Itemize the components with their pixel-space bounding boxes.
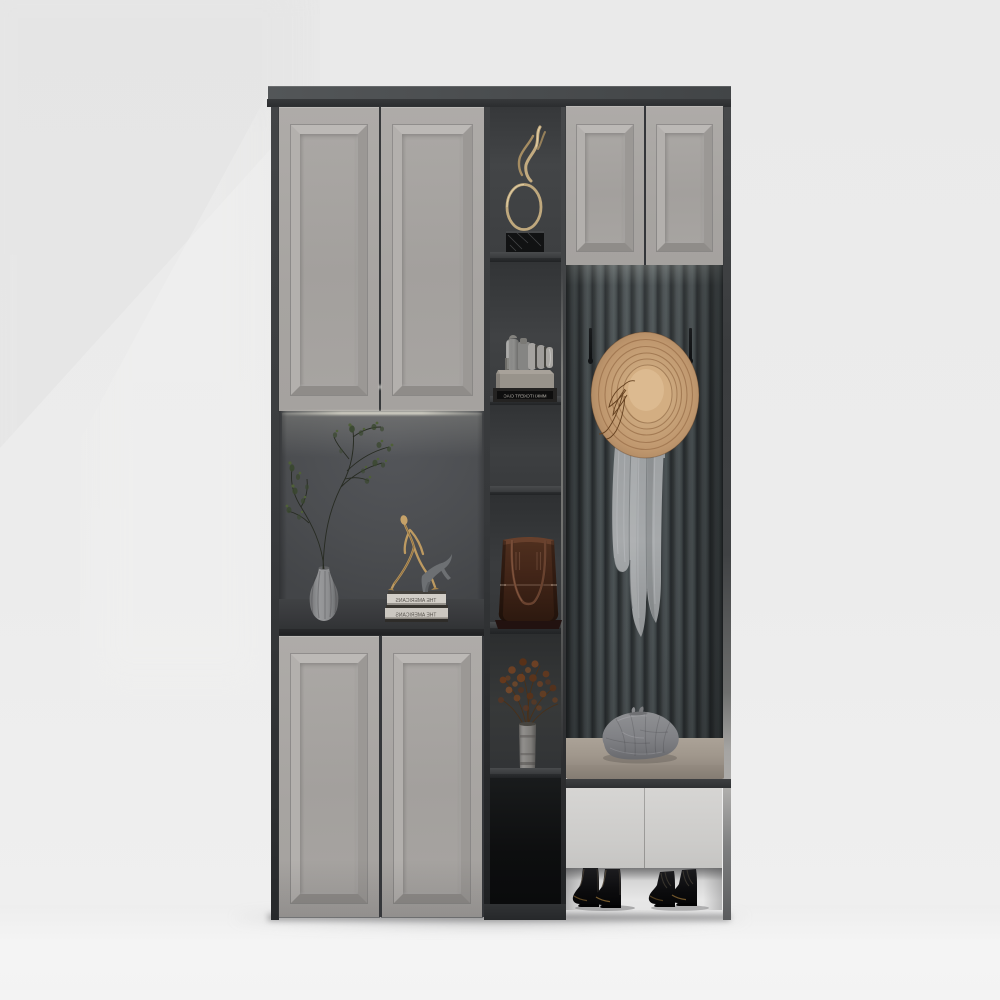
svg-text:MMKI ITCKERT CIAC: MMKI ITCKERT CIAC: [503, 393, 546, 398]
